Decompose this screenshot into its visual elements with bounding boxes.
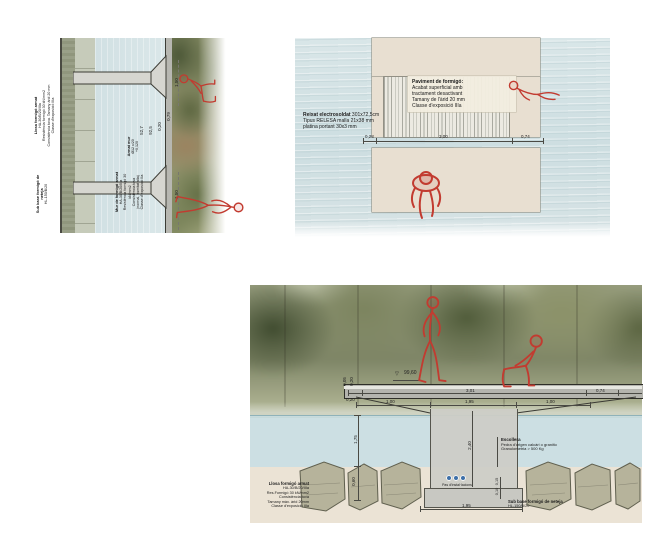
dimension-label: 0,10 [495, 488, 500, 495]
person-sketch-seated [174, 60, 220, 116]
dimension-tick [362, 390, 363, 396]
person-sketch-lying [506, 68, 564, 114]
dimension-label: 0,60 [351, 477, 356, 486]
dimension-tick [354, 500, 361, 501]
note-line: platina portant 30x3 mm [303, 124, 405, 130]
dimension-tick [512, 138, 513, 144]
elevation-panel: Pas d'instal·lacions ▽ 99,60 0,20 3,01 0… [250, 285, 642, 543]
dimension-line [420, 509, 523, 510]
dimension-label: 0,74 [521, 134, 530, 139]
note-line: +0,120 [135, 133, 139, 160]
section-panel: Llosa formigó armat HA-30/B/20/IIIa Resi… [28, 38, 230, 233]
dimension-label: 0,74 [596, 388, 605, 393]
dimension-tick [356, 402, 357, 408]
dimension-line [358, 415, 359, 501]
dimension-label: 1,00 [546, 399, 555, 404]
dimension-label: 0,20 [157, 122, 162, 131]
dimension-label: 0,20 [349, 377, 354, 386]
dimension-line [472, 411, 473, 487]
concrete-slab-lower [372, 148, 540, 212]
pier-upper [73, 54, 167, 100]
drawing-sheet: Llosa formigó armat HA-30/B/20/IIIa Resi… [0, 0, 670, 543]
dimension-label: 1,95 [465, 399, 474, 404]
mur-spec-note: Mur de formigó armat HA-30/B/20/IIIa Res… [115, 172, 141, 212]
dimension-label: 0,20 [346, 397, 355, 402]
dimension-line [363, 141, 543, 142]
note-title: Sub base formigó de neteja [36, 170, 44, 218]
note-line: Classe d'exposició IIIa [51, 63, 55, 168]
escollera-note: Escollera Pedra d'origen calcàri o graní… [501, 438, 593, 452]
dimension-tick [420, 506, 421, 512]
utility-conduit-icon [454, 476, 458, 480]
dimension-label: 1,75 [353, 435, 358, 444]
llosa-spec-note: Llosa formigó armat HA-30/B/20/IIIa Resi… [34, 63, 52, 168]
level-marker-icon: ▽ [395, 371, 399, 377]
dimension-tick [430, 402, 431, 408]
dimension-tick [618, 390, 619, 396]
dimension-label: 0,79 [166, 112, 171, 121]
dimension-tick [590, 402, 591, 408]
person-sketch-top-view [403, 157, 449, 221]
dimension-tick [354, 466, 361, 467]
dimension-label: 2,40 [467, 441, 472, 450]
dimension-label: 3,00 [439, 134, 448, 139]
note-line: Resistència formigó 30 kN/mm2 [123, 172, 131, 212]
subbase-spec-note: Sub base formigó de neteja HL-150/B/20 [36, 170, 49, 218]
sheet-margin [250, 523, 642, 543]
dimension-label: 0,15 [495, 478, 500, 485]
dimension-label: 52,7 [139, 126, 144, 135]
llosa-spec-note: Llosa formigó armat HA-30/B/20/IIIa Res.… [251, 482, 309, 508]
reixat-note: Reixat electrosoldat 301x72,5cm Tipus RE… [303, 112, 405, 130]
utility-conduit-icon [461, 476, 465, 480]
dimension-tick [348, 390, 349, 396]
dimension-tick [376, 138, 377, 144]
person-sketch-walking [186, 170, 232, 242]
dimension-label: 1,95 [462, 503, 471, 508]
dimension-label: 92,5 [148, 126, 153, 135]
note-line: Granulometria > 500 Kg [501, 447, 593, 452]
dimension-line [356, 405, 590, 406]
note-line: Classe d'exposició IIa [140, 172, 144, 212]
utility-conduit-icon [447, 476, 451, 480]
dimension-label: 0,05 [342, 377, 347, 386]
note-line: HL-150/B/20 [508, 504, 580, 508]
dimension-label: 0,28 [365, 134, 374, 139]
note-line: Classe d'exposició IIIa [412, 103, 512, 109]
dimension-tick [516, 402, 517, 408]
dimension-tick [543, 138, 544, 144]
armat-note: Armat mur Ø12 c/20 +0,120 [127, 133, 140, 160]
dimension-label: 3,01 [466, 388, 475, 393]
conduit-label: Pas d'instal·lacions [434, 483, 480, 488]
person-sketch-seated [490, 329, 556, 391]
dimension-tick [363, 138, 364, 144]
leader-line [497, 437, 498, 467]
plan-panel: 0,28 3,00 0,74 Paviment de formigó: Acab… [295, 38, 610, 237]
dimension-tick [586, 390, 587, 396]
dimension-tick [354, 415, 361, 416]
paviment-note: Paviment de formigó: Acabat superficial … [408, 76, 516, 112]
person-sketch-walking [410, 291, 452, 389]
note-line: HL-150/B/20 [44, 170, 48, 218]
subbase-spec-note: Sub base formigó de neteja HL-150/B/20 [508, 500, 580, 509]
note-line: Classe d'exposició IIIa [251, 504, 309, 508]
dimension-line [348, 393, 642, 394]
dimension-label: 1,00 [386, 399, 395, 404]
